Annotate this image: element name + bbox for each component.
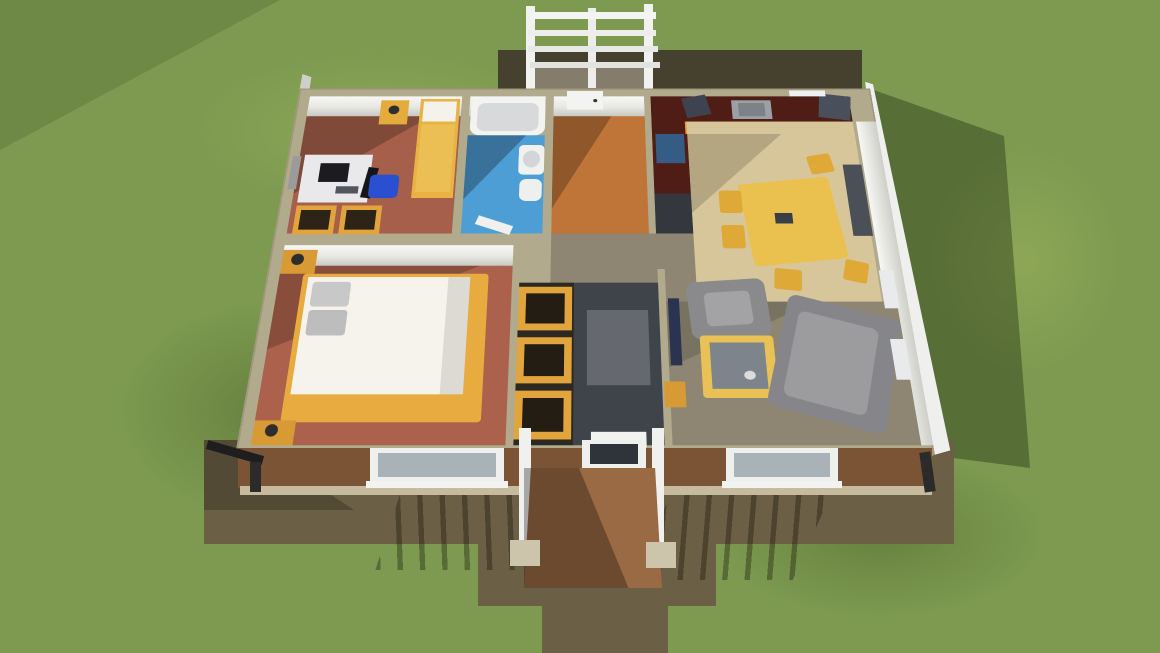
front-window-right-sill: [722, 481, 842, 488]
gutter-downspout-left-drop: [250, 462, 261, 492]
kitchen-sink-basin: [738, 103, 766, 116]
foyer-shelf: [664, 382, 687, 408]
toilet: [519, 179, 542, 201]
pergola-rail-1: [528, 30, 656, 36]
bed-pillow-2: [305, 310, 348, 336]
bathtub-basin: [476, 103, 539, 131]
front-window-left-glass: [378, 453, 496, 477]
bed-pillow-1: [309, 282, 351, 307]
wardrobe-2-interior: [524, 344, 565, 376]
office-monitor: [318, 163, 350, 182]
house: [235, 89, 935, 455]
pergola-rail-3: [530, 62, 660, 68]
hallway-floor: [550, 234, 658, 283]
foyer-light-patch: [587, 310, 651, 385]
wardrobe-1-interior: [525, 293, 565, 323]
porch-post-cap-right: [646, 542, 676, 568]
kitchen-back-window: [789, 90, 826, 96]
office-closet-2-interior: [344, 210, 377, 230]
dining-chair-1: [718, 191, 743, 213]
office-closet-1-interior: [298, 210, 331, 230]
office-keyboard: [335, 186, 359, 193]
front-door-pane: [590, 444, 638, 464]
scene: [0, 0, 1160, 653]
chimney-shaft: [654, 194, 693, 236]
dining-chair-2: [721, 225, 746, 248]
pergola-beam-top: [530, 12, 656, 19]
dining-table-centerpiece: [775, 213, 794, 224]
wardrobe-3-interior: [522, 398, 564, 432]
coffee-table-item: [744, 371, 756, 380]
coffee-table-glass: [709, 342, 768, 388]
front-window-left-sill: [366, 481, 508, 488]
back-door-knob: [593, 99, 597, 102]
pergola-rail-2: [528, 46, 658, 52]
front-window-right-glass: [734, 453, 830, 477]
dining-chair-3: [774, 268, 802, 292]
cooktop: [655, 134, 685, 163]
back-door: [567, 91, 603, 109]
porch-post-cap-left: [510, 540, 540, 566]
office-chair-seat: [368, 175, 400, 198]
office-daybed-blanket: [415, 124, 455, 192]
dirt-yard-bottom: [542, 606, 668, 653]
office-daybed-pillow: [422, 102, 457, 122]
armchair-cushion: [703, 290, 754, 326]
refrigerator: [819, 93, 851, 120]
